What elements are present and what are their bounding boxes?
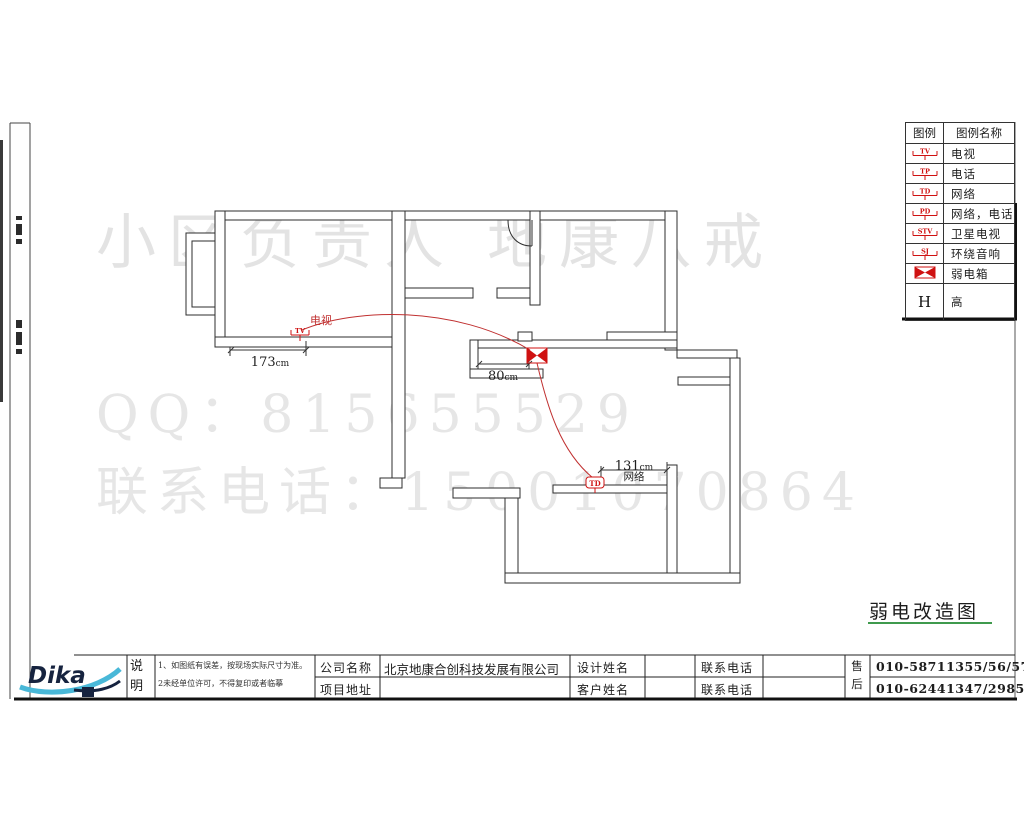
legend-table: 图例 图例名称 TV电视TP电话TD网络PD网络，电话STV卫星电视SJ环绕音响… — [905, 122, 1015, 321]
drawing-sheet: 小区负责人 地康八戒 QQ：815655529 联系电话：15001070864 — [0, 0, 1024, 819]
left-edge-bar — [0, 140, 3, 402]
legend-row: PD网络，电话 — [906, 204, 1015, 224]
legend-header-row: 图例 图例名称 — [906, 123, 1015, 144]
legend-symbol-cell: TD — [906, 184, 944, 204]
legend-name-cell: 网络，电话 — [944, 204, 1015, 224]
legend-symbol-cell: H — [906, 284, 944, 321]
legend-header-symbol: 图例 — [906, 123, 944, 144]
legend-row: TP电话 — [906, 164, 1015, 184]
legend-symbol-cell: PD — [906, 204, 944, 224]
legend-row: SJ环绕音响 — [906, 244, 1015, 264]
legend-name-cell: 卫星电视 — [944, 224, 1015, 244]
drawing-title: 弱电改造图 — [869, 597, 979, 624]
wall-corridor-north — [470, 340, 677, 348]
legend-symbol-cell: STV — [906, 224, 944, 244]
legend-symbol-weak-current-box — [908, 265, 942, 280]
service-label: 售后 — [849, 658, 865, 694]
legend-symbol-sj-icon: SJ — [908, 245, 942, 260]
legend-row: STV卫星电视 — [906, 224, 1015, 244]
dimension-173cm: 173cm — [238, 351, 302, 370]
dim-173-unit: cm — [276, 359, 290, 369]
phone-label-2: 联系电话 — [701, 681, 753, 698]
company-value: 北京地康合创科技发展有限公司 — [384, 659, 559, 678]
left-strip-text-marks — [16, 216, 22, 354]
legend-name-cell: 网络 — [944, 184, 1015, 204]
niche-notch — [518, 332, 532, 341]
dim-80-unit: cm — [504, 373, 518, 383]
service-phone-2: 010-62441347/2985 — [876, 681, 1024, 696]
wall-corridor-foot — [380, 478, 402, 488]
legend-symbol-height: H — [918, 293, 931, 311]
sheet-frame-left-strip — [10, 123, 30, 699]
legend-symbol-cell: TP — [906, 164, 944, 184]
bay-window-inner — [192, 241, 215, 307]
legend-symbol-cell: TV — [906, 144, 944, 164]
svg-text:SJ: SJ — [921, 247, 929, 255]
svg-text:TD: TD — [919, 187, 930, 195]
legend-symbol-tp-icon: TP — [908, 165, 942, 180]
tv-symbol-text: TV — [295, 327, 306, 335]
legend-row: H高 — [906, 284, 1015, 321]
legend-row: TD网络 — [906, 184, 1015, 204]
wall-brroom-left — [505, 498, 518, 573]
door-arc — [508, 220, 532, 246]
wall-br-divider — [667, 465, 677, 573]
dim-80-number: 80 — [488, 369, 505, 384]
legend-row: 弱电箱 — [906, 264, 1015, 284]
legend-name-cell: 电话 — [944, 164, 1015, 184]
wall-brroom-top-left — [453, 488, 520, 498]
note-line-2: 2未经单位许可，不得复印或者临摹 — [158, 678, 283, 689]
legend-symbol-td-icon: TD — [908, 185, 942, 200]
svg-text:STV: STV — [917, 227, 933, 235]
dim-173-number: 173 — [251, 355, 276, 370]
service-phone-1: 010-58711355/56/57 — [876, 659, 1024, 674]
svg-text:TV: TV — [920, 147, 931, 155]
wall-right-outer-top — [665, 211, 677, 350]
weak-current-box-symbol — [527, 348, 547, 363]
legend-symbol-tv-icon: TV — [908, 145, 942, 160]
address-label: 项目地址 — [320, 681, 372, 698]
designer-label: 设计姓名 — [577, 659, 629, 676]
wall-livingroom-bottom — [215, 337, 405, 347]
legend-header-name: 图例名称 — [944, 123, 1015, 144]
legend-name-cell: 弱电箱 — [944, 264, 1015, 284]
walls — [186, 211, 740, 583]
floor-plan-linework: TV TD — [0, 0, 1024, 819]
plan-network-label: 网络 — [610, 469, 658, 484]
svg-text:PD: PD — [919, 207, 930, 215]
wall-top — [215, 211, 677, 220]
customer-label: 客户姓名 — [577, 681, 629, 698]
wall-right-outer-bottom — [730, 358, 740, 583]
wall-corridor-left — [392, 211, 405, 478]
legend-row: TV电视 — [906, 144, 1015, 164]
plan-tv-label: 电视 — [310, 312, 332, 328]
note-label: 说明 — [129, 657, 145, 697]
phone-label-1: 联系电话 — [701, 659, 753, 676]
svg-text:TP: TP — [920, 167, 930, 175]
wall-bottom — [505, 573, 740, 583]
wall-window-line — [678, 377, 730, 385]
dimension-80cm: 80cm — [478, 365, 528, 384]
legend-name-cell: 电视 — [944, 144, 1015, 164]
wall-network — [553, 485, 670, 493]
network-symbol-text: TD — [589, 479, 600, 488]
legend-name-cell: 高 — [944, 284, 1015, 321]
legend-symbol-cell — [906, 264, 944, 284]
wall-midroom-bottom-a — [405, 288, 473, 298]
company-label: 公司名称 — [320, 659, 372, 676]
legend-symbol-cell: SJ — [906, 244, 944, 264]
legend-symbol-stv-icon: STV — [908, 225, 942, 240]
wall-left — [215, 211, 225, 347]
legend-symbol-pd-icon: PD — [908, 205, 942, 220]
wall-jog-top — [677, 350, 737, 358]
logo-glyph-fragment — [82, 687, 94, 697]
legend-name-cell: 环绕音响 — [944, 244, 1015, 264]
dikang-logo: Dika — [16, 653, 124, 699]
wire-box-to-network — [537, 363, 593, 478]
logo-text: Dika — [28, 663, 86, 689]
note-line-1: 1、如图纸有误差，按现场实际尺寸为准。 — [158, 660, 307, 671]
